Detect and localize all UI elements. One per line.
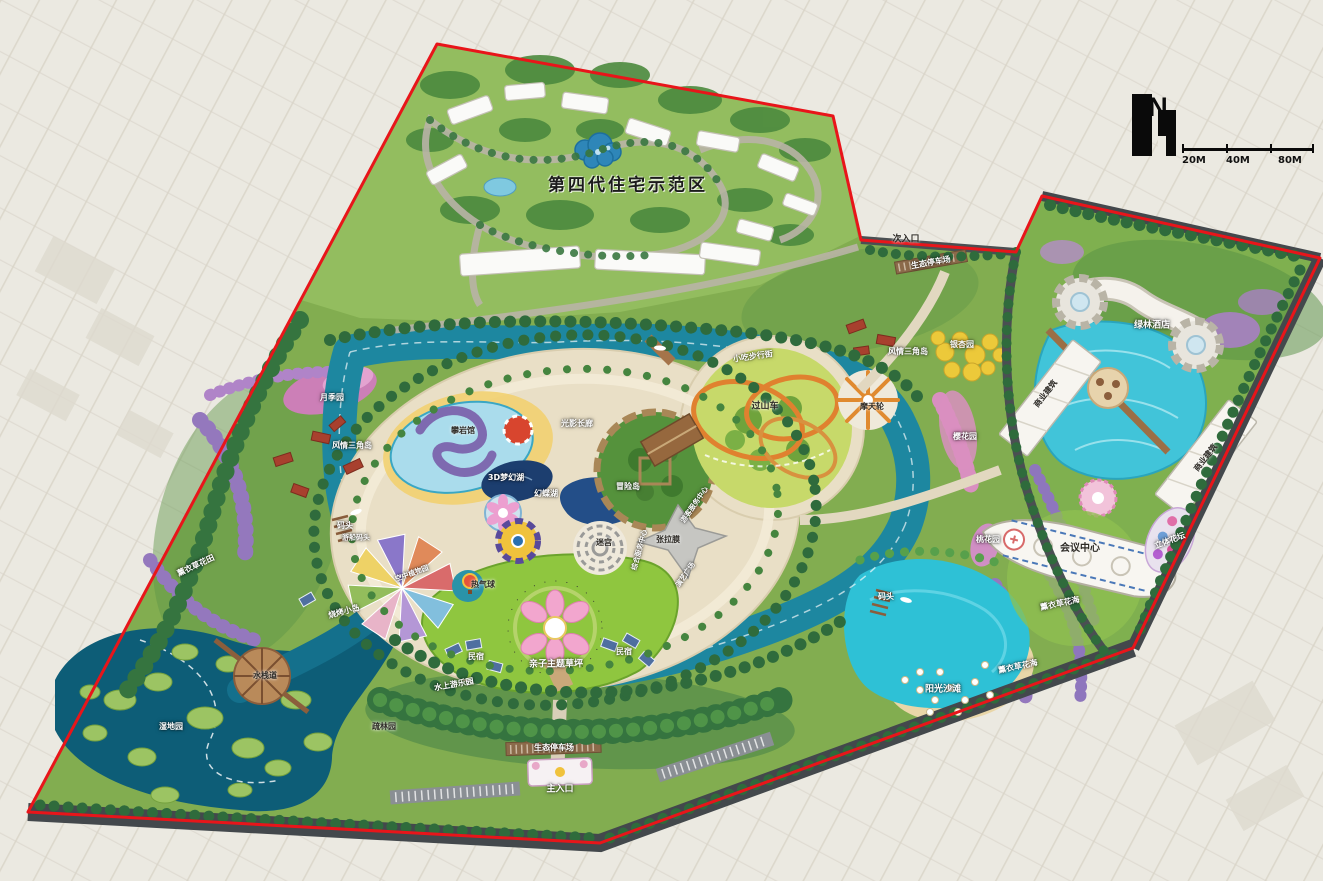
scale-bar: 20M 40M 80M bbox=[1182, 138, 1317, 172]
scale-80m: 80M bbox=[1278, 155, 1302, 166]
maze bbox=[573, 521, 627, 575]
scale-20m: 20M bbox=[1182, 155, 1206, 166]
master-plan-svg bbox=[0, 0, 1323, 881]
main-gate bbox=[528, 758, 593, 786]
north-arrow-glyph bbox=[1128, 92, 1180, 158]
master-plan: N 20M 40M 80M 第四代住宅示范区 次入口生态停车场绿林酒店商业建筑商… bbox=[0, 0, 1323, 881]
plan-title: 第四代住宅示范区 bbox=[548, 178, 708, 195]
hot-air-balloon bbox=[452, 570, 484, 602]
north-arrow: N bbox=[1128, 92, 1188, 123]
scale-40m: 40M bbox=[1226, 155, 1250, 166]
